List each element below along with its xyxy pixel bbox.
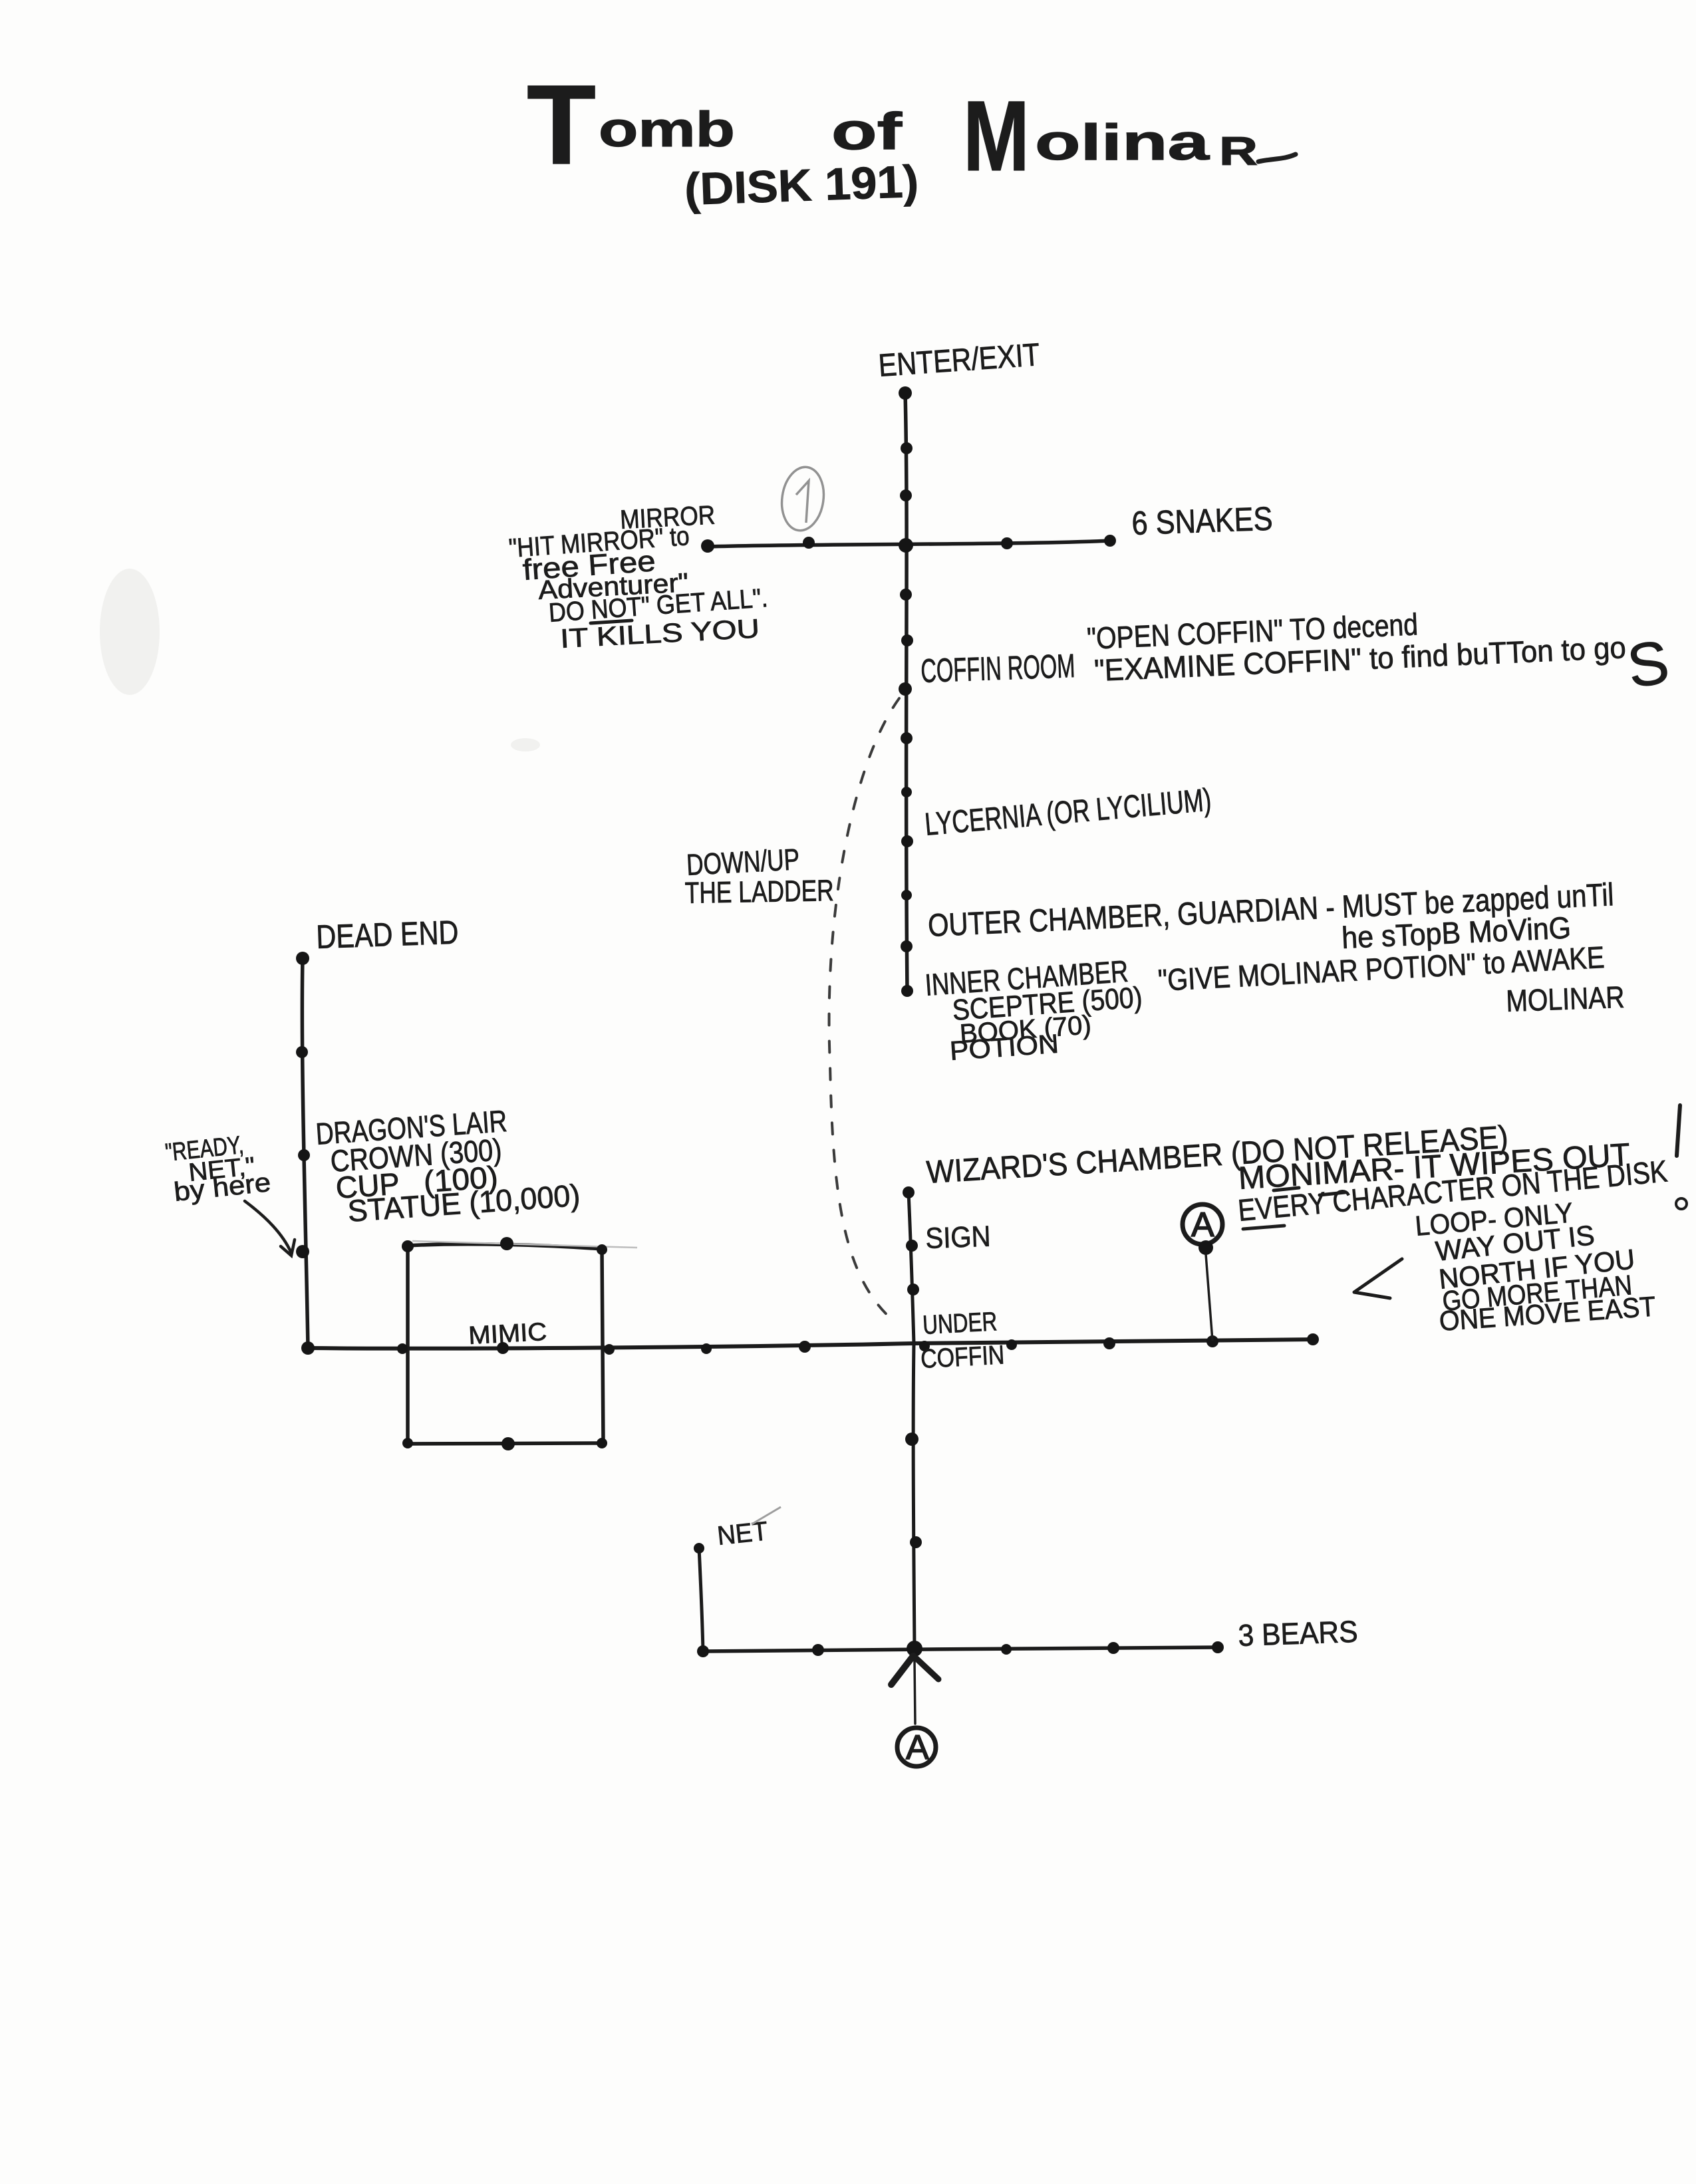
svg-text:omb: omb <box>599 102 735 157</box>
svg-text:of: of <box>831 102 903 160</box>
svg-text:UNDER: UNDER <box>922 1307 998 1340</box>
svg-text:DEAD END: DEAD END <box>315 914 459 956</box>
svg-text:olina: olina <box>1035 114 1210 171</box>
svg-text:COFFIN ROOM: COFFIN ROOM <box>920 647 1075 690</box>
svg-text:3 BEARS: 3 BEARS <box>1238 1614 1359 1653</box>
svg-text:R: R <box>1219 129 1258 174</box>
svg-text:A: A <box>1191 1206 1214 1244</box>
svg-text:MOLINAR: MOLINAR <box>1506 980 1625 1018</box>
svg-text:A: A <box>906 1728 929 1767</box>
svg-text:COFFIN: COFFIN <box>920 1340 1005 1374</box>
svg-text:6 SNAKES: 6 SNAKES <box>1131 500 1274 542</box>
svg-text:SIGN: SIGN <box>925 1220 992 1255</box>
svg-text:NET: NET <box>716 1516 769 1551</box>
svg-text:M: M <box>963 80 1030 192</box>
svg-text:(DISK 191): (DISK 191) <box>684 156 919 215</box>
svg-text:T: T <box>527 62 596 188</box>
svg-text:THE LADDER: THE LADDER <box>684 873 834 910</box>
